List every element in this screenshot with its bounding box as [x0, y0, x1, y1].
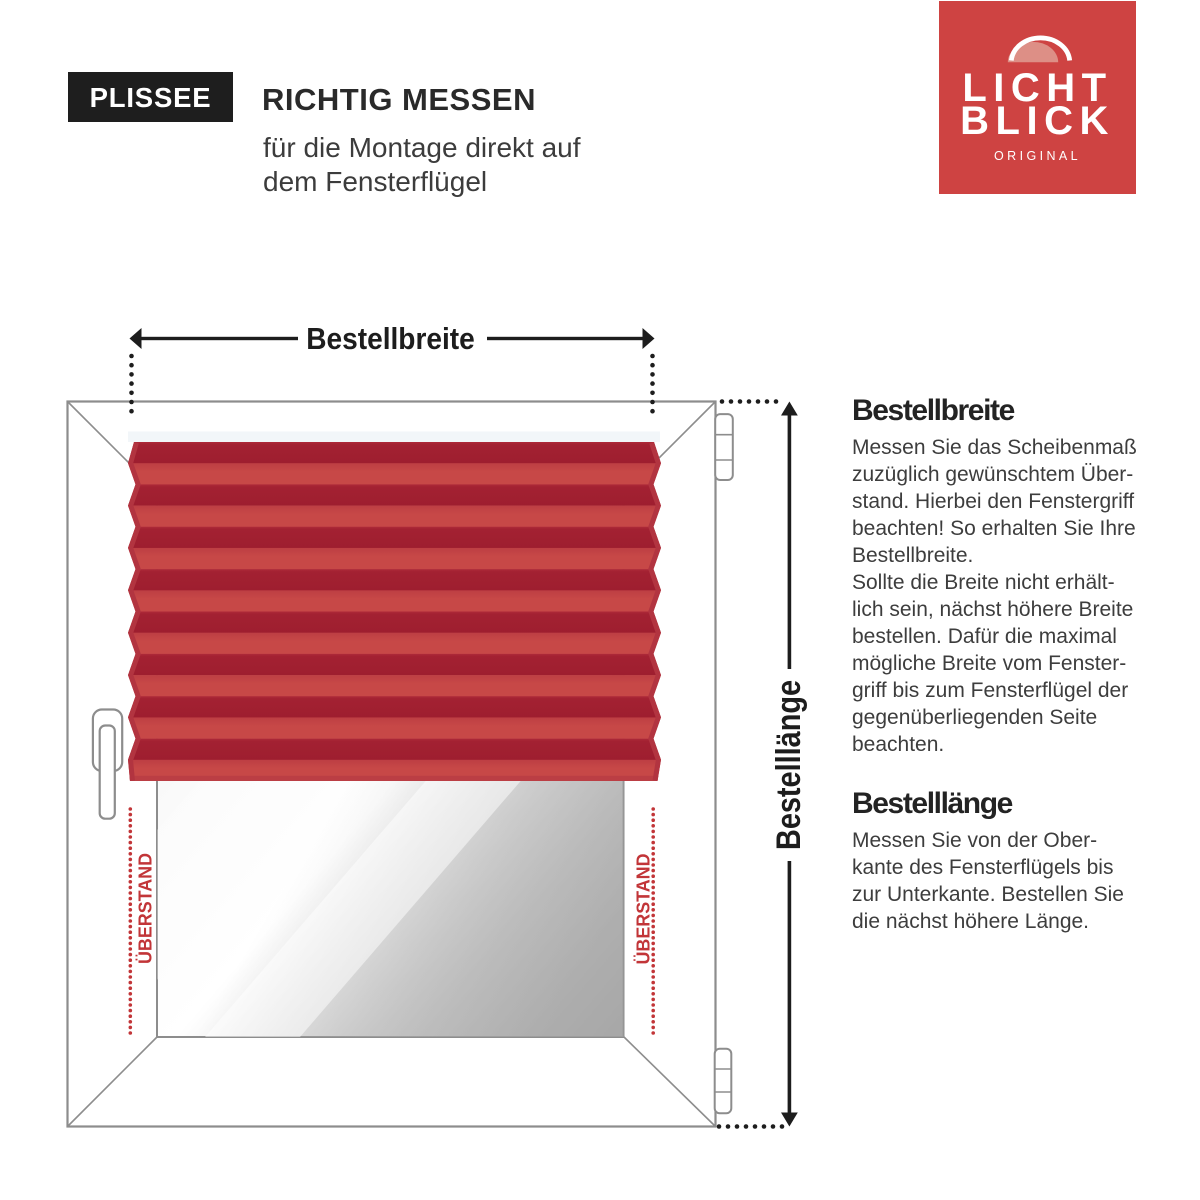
svg-text:ÜBERSTAND: ÜBERSTAND	[634, 854, 654, 965]
svg-text:Bestelllänge: Bestelllänge	[770, 680, 808, 850]
svg-text:ÜBERSTAND: ÜBERSTAND	[136, 853, 156, 964]
svg-text:Bestellbreite: Bestellbreite	[306, 321, 475, 356]
